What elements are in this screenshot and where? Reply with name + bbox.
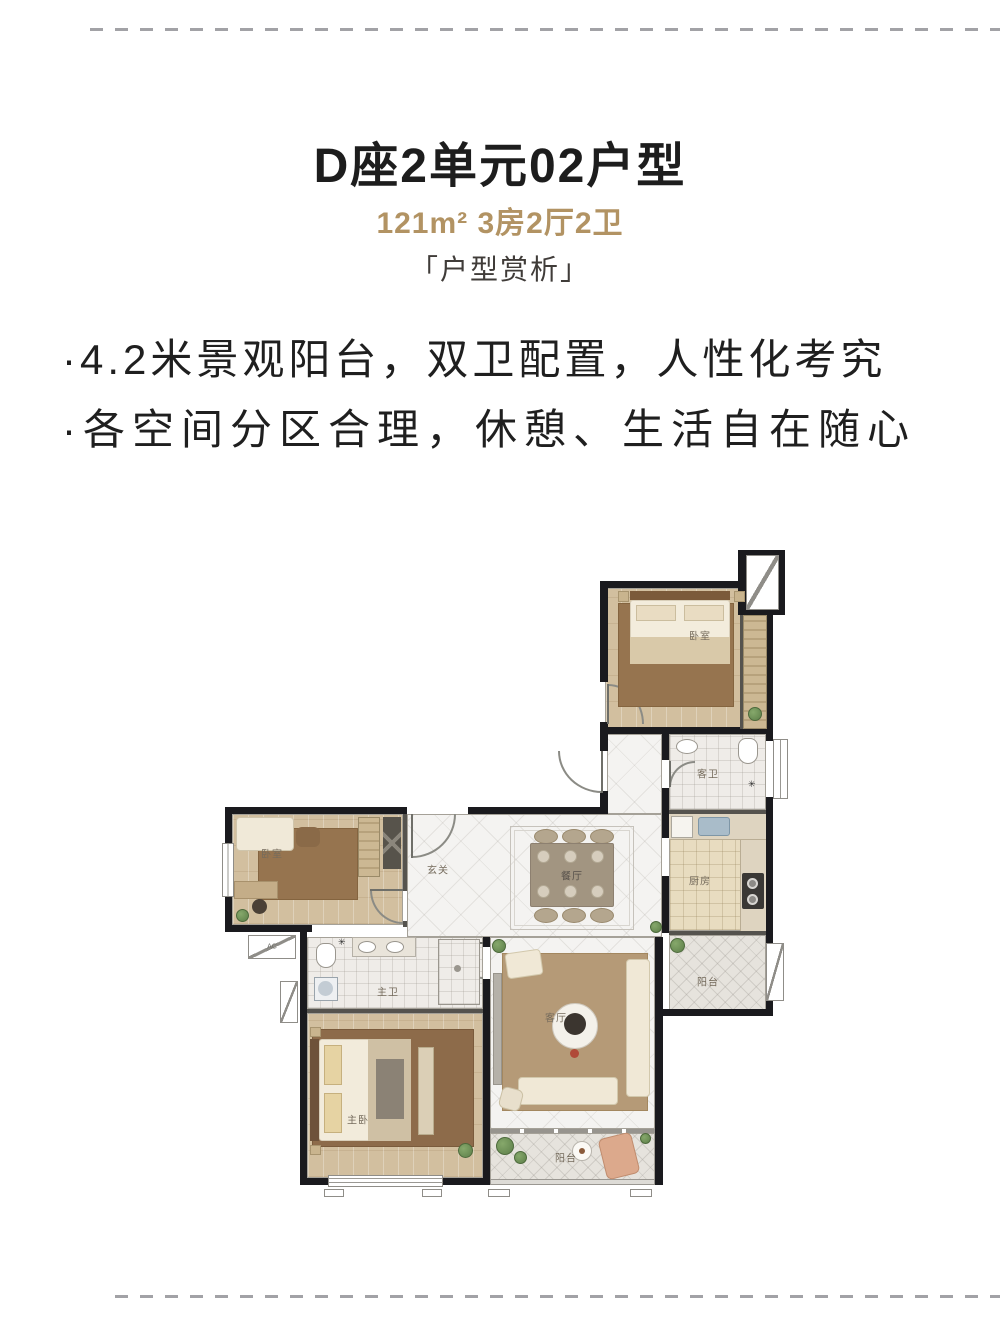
door-leaf: [411, 814, 413, 858]
section-tagline: 「户型赏析」: [0, 248, 1000, 288]
room-label-master-bath: 主卫: [377, 984, 399, 999]
wall-segment: [662, 812, 669, 838]
wall-segment: [225, 925, 312, 932]
nightstand: [310, 1027, 321, 1037]
room-label-guest-bath: 客卫: [697, 766, 719, 781]
room-label-kitchen: 厨房: [689, 873, 711, 888]
wall-segment: [300, 1178, 330, 1185]
sofa: [626, 959, 650, 1097]
pillow: [324, 1045, 342, 1085]
plant-icon: [670, 938, 685, 953]
plate: [564, 850, 577, 863]
kitchen-sink: [698, 817, 730, 836]
room-label-bedroom-tr: 卧室: [689, 628, 711, 643]
dining-chair: [562, 829, 586, 844]
floor-plan: AC ✳: [200, 545, 800, 1205]
plate: [591, 885, 604, 898]
ac-platform-window: [746, 555, 779, 610]
window-sill: [488, 1189, 510, 1197]
exhaust-fan-icon: ✳: [338, 937, 346, 948]
bathroom-sink: [676, 739, 698, 754]
shower: [438, 939, 480, 1005]
unit-spec: 121m² 3房2厅2卫: [0, 198, 1000, 242]
shoe-cabinet: [383, 817, 401, 869]
room-label-dining: 餐厅: [561, 868, 583, 883]
plant-icon: [640, 1133, 651, 1144]
dining-chair: [590, 829, 614, 844]
plant-icon: [748, 707, 762, 721]
room-label-living: 客厅: [545, 1010, 567, 1025]
pillow: [324, 1093, 342, 1133]
bay-window: [773, 739, 788, 799]
wall-segment: [766, 933, 773, 943]
plant-icon: [492, 939, 506, 953]
sliding-door: [490, 1129, 655, 1133]
wall-segment: [655, 937, 663, 1185]
ac-platform: AC: [248, 935, 296, 959]
door-leaf: [607, 684, 609, 724]
bed-headboard: [310, 1039, 319, 1141]
wall-segment: [662, 727, 669, 760]
room-label-balcony-right: 阳台: [697, 974, 719, 989]
room-label-foyer: 玄关: [427, 862, 449, 877]
wall-segment: [307, 1009, 483, 1013]
plate: [537, 885, 550, 898]
toilet: [738, 738, 758, 764]
wall-segment: [403, 921, 407, 927]
plant-icon: [458, 1143, 473, 1158]
window-symbol: [328, 1175, 443, 1187]
dining-chair: [590, 908, 614, 923]
desk: [234, 881, 278, 899]
feature-bullet-2: ·各空间分区合理，休憩、生活自在随心: [62, 396, 916, 457]
wall-segment: [662, 876, 669, 933]
exhaust-fan-icon: ✳: [748, 779, 756, 790]
wall-segment: [483, 979, 490, 1185]
plate: [564, 885, 577, 898]
room-label-bedroom-left: 卧室: [261, 846, 283, 861]
plant-icon: [496, 1137, 514, 1155]
dining-chair: [534, 829, 558, 844]
desk-chair: [252, 899, 267, 914]
pillow: [684, 605, 724, 621]
wall-segment: [766, 797, 773, 933]
table-decor: [564, 1013, 586, 1035]
door-leaf: [370, 889, 403, 891]
wardrobe: [358, 817, 380, 877]
fridge: [671, 816, 693, 838]
wall-segment: [225, 807, 407, 814]
window-sill: [422, 1189, 442, 1197]
floor-decor: [570, 1049, 579, 1058]
room-label-master-bedroom: 主卧: [347, 1112, 369, 1127]
bed-bench: [418, 1047, 434, 1135]
bed-headboard: [630, 591, 730, 600]
wall-segment: [669, 931, 766, 935]
dining-chair: [562, 908, 586, 923]
window-sill: [630, 1189, 652, 1197]
plant-icon: [236, 909, 249, 922]
door-leaf: [601, 751, 603, 793]
door-leaf: [669, 761, 671, 787]
armchair: [296, 827, 320, 847]
bathroom-sink: [386, 941, 404, 953]
promo-page: D座2单元02户型 121m² 3房2厅2卫 「户型赏析」 ·4.2米景观阳台，…: [0, 0, 1000, 1323]
wall-segment: [662, 788, 669, 812]
cup: [579, 1148, 585, 1154]
dining-chair: [534, 908, 558, 923]
room-label-balcony-bottom: 阳台: [555, 1150, 577, 1165]
feature-bullet-1: ·4.2米景观阳台，双卫配置，人性化考究: [62, 326, 886, 387]
door-arc-entry: [558, 751, 602, 793]
throw-blanket: [376, 1059, 404, 1119]
nightstand: [310, 1145, 321, 1155]
burner: [747, 894, 758, 905]
window-symbol: [280, 981, 298, 1023]
window-symbol: [766, 943, 784, 1001]
ac-label: AC: [267, 944, 277, 951]
nightstand: [734, 591, 745, 602]
bottom-dashed-divider: [115, 1295, 1000, 1298]
burner: [747, 878, 758, 889]
top-dashed-divider: [90, 28, 1000, 31]
wall-segment: [600, 581, 608, 682]
pillow: [636, 605, 676, 621]
washer-drum: [318, 981, 333, 996]
blanket: [630, 637, 730, 664]
plant-icon: [650, 921, 662, 933]
nightstand: [618, 591, 629, 602]
plate: [591, 850, 604, 863]
armchair: [504, 949, 543, 980]
tv-console: [493, 973, 502, 1085]
wall-segment: [655, 1009, 773, 1016]
wall-segment: [468, 807, 604, 814]
window-symbol: [222, 843, 234, 897]
bathroom-sink: [358, 941, 376, 953]
plant-icon: [514, 1151, 527, 1164]
page-title: D座2单元02户型: [0, 126, 1000, 196]
balcony-rail-window: [490, 1179, 655, 1185]
room-corridor: [607, 734, 662, 814]
window-sill: [324, 1189, 344, 1197]
plate: [537, 850, 550, 863]
sofa: [518, 1077, 618, 1105]
shower-drain: [454, 965, 461, 972]
wall-segment: [300, 932, 307, 1185]
toilet: [316, 943, 336, 968]
wall-segment: [483, 937, 490, 947]
wall-segment: [403, 814, 407, 891]
